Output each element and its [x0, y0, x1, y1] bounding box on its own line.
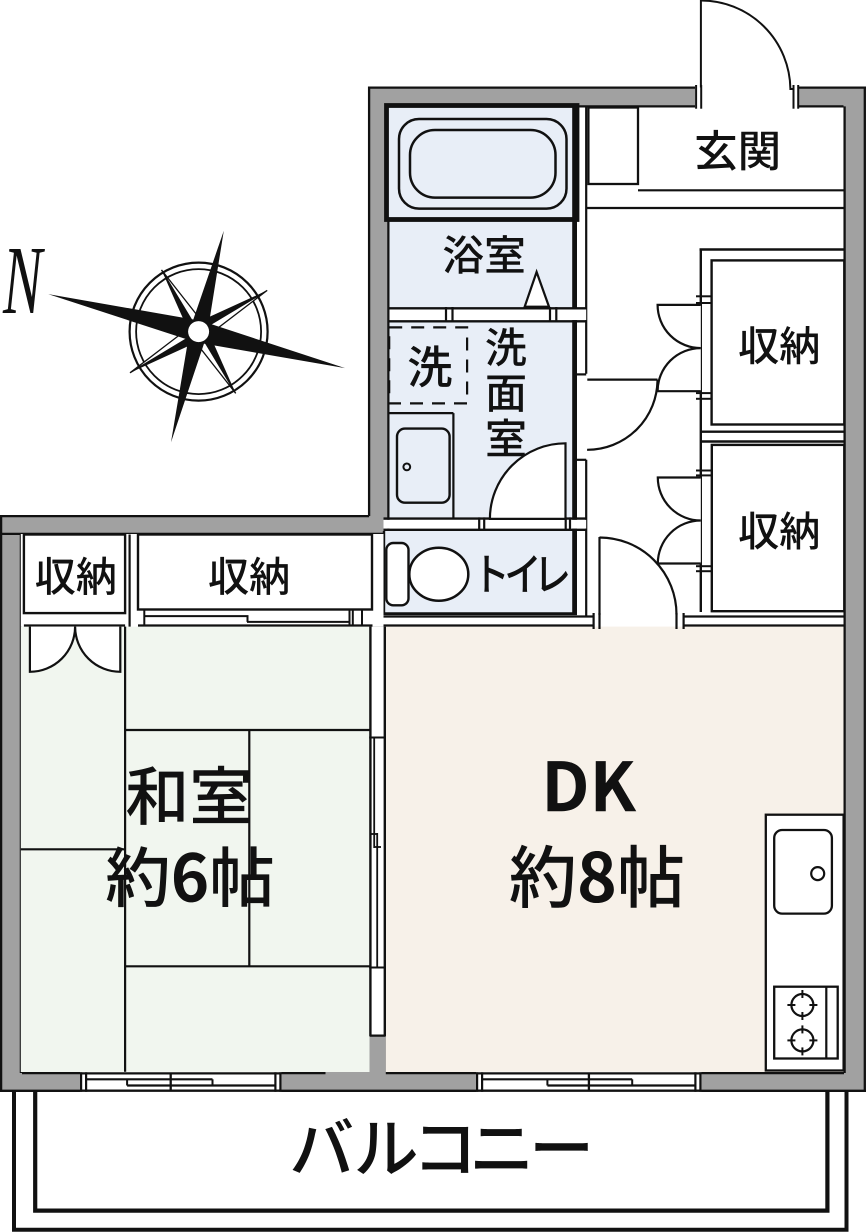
- svg-text:N: N: [2, 227, 45, 335]
